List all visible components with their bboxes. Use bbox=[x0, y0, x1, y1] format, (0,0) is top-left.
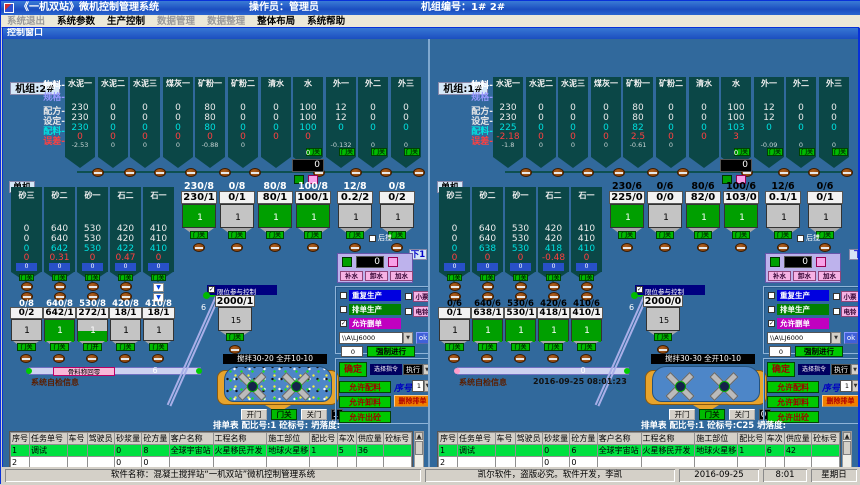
agg-weigher-body: 1 bbox=[143, 319, 174, 341]
ticket-checkbox[interactable] bbox=[405, 293, 412, 300]
agg-weigher-target-label: 640/6 bbox=[471, 299, 504, 307]
materials-row-label-0: 物料- bbox=[461, 78, 493, 88]
holding-gate-button[interactable]: 门关 bbox=[654, 333, 672, 341]
aggregate-gate-button[interactable]: 门关 bbox=[447, 274, 462, 281]
aggregate-valve[interactable] bbox=[87, 282, 99, 291]
table-header-12[interactable]: 砼标号 bbox=[812, 433, 840, 445]
agg-weigher-value: 410/1 bbox=[570, 307, 603, 319]
force-button[interactable]: 强制进行 bbox=[367, 346, 415, 357]
table-header-6[interactable]: 客户名称 bbox=[169, 433, 213, 445]
control-window-client: 机组:2#物料-规格-配方-设定-配料-误差-水泥一2302302300-2.5… bbox=[3, 39, 858, 467]
weigher-target-label: 12/8 bbox=[337, 181, 373, 191]
materials-row-label-1: 规格- bbox=[461, 90, 493, 100]
bell-checkbox[interactable] bbox=[405, 308, 412, 315]
weigher-count: 1 bbox=[393, 213, 403, 223]
materials-row-label-5: 误差- bbox=[461, 134, 493, 144]
materials-row-label-2: 配方- bbox=[461, 104, 493, 114]
repeat-label: 重复生产 bbox=[349, 290, 401, 301]
agg-weigher-door-button[interactable]: 门关 bbox=[149, 343, 168, 351]
aggregate-gate-button[interactable]: 门关 bbox=[546, 274, 561, 281]
rear-mix-checkbox[interactable] bbox=[369, 235, 376, 242]
command-panel: 确定选择指令执行▼允许配料序号1▼允许卸料删除排单允许出砼 bbox=[335, 358, 430, 424]
water-display: 0 bbox=[720, 159, 752, 172]
material-name: 水 bbox=[721, 78, 751, 88]
table-cell: 调试 bbox=[458, 445, 496, 457]
agg-weigher-door-button[interactable]: 门关 bbox=[445, 343, 464, 351]
water-display: 0 bbox=[292, 159, 324, 172]
exec-combo[interactable]: 执行 bbox=[403, 364, 423, 375]
material-setting: 0 bbox=[358, 113, 388, 123]
material-valve[interactable] bbox=[413, 168, 425, 177]
aggregate-valve[interactable] bbox=[54, 282, 66, 291]
aggregate-gate-button[interactable]: 门关 bbox=[151, 274, 166, 281]
weigher-count: 1 bbox=[821, 213, 831, 223]
material-setting: 0 bbox=[391, 113, 421, 123]
weigher-gate-button[interactable]: 门关 bbox=[304, 231, 322, 239]
water-button-0[interactable]: 补水 bbox=[340, 271, 363, 281]
agg-weigher-door-button[interactable]: 门关 bbox=[17, 343, 36, 351]
weigher-body: 1 bbox=[338, 204, 372, 228]
repeat-checkbox[interactable] bbox=[340, 292, 347, 299]
weigher-count: 1 bbox=[661, 213, 671, 223]
table-header-3[interactable]: 驾驶员 bbox=[515, 433, 543, 445]
table-header-2[interactable]: 车号 bbox=[67, 433, 87, 445]
agg-weigher-target-label: 530/8 bbox=[76, 299, 109, 307]
limit-checkbox[interactable]: ✓ bbox=[636, 286, 643, 293]
holding-valve[interactable] bbox=[657, 345, 669, 354]
material-gate-button[interactable]: 门关 bbox=[404, 148, 420, 156]
weigher-target-label: 230/8 bbox=[181, 181, 217, 191]
agg-weigher-body: 1 bbox=[505, 319, 536, 341]
agg-weigher-valve[interactable] bbox=[152, 354, 164, 363]
weigher-valve[interactable] bbox=[231, 243, 243, 252]
material-name: 水 bbox=[293, 78, 323, 88]
seq-combo[interactable]: 1 bbox=[412, 380, 424, 392]
agg-weigher-door-button[interactable]: 门关 bbox=[116, 343, 135, 351]
material-valve[interactable] bbox=[154, 168, 166, 177]
material-gate-button[interactable]: 门关 bbox=[371, 148, 387, 156]
delete-order-button[interactable]: 删除排单 bbox=[822, 395, 858, 407]
water-button-0[interactable]: 补水 bbox=[768, 271, 791, 281]
agg-weigher-valve[interactable] bbox=[119, 354, 131, 363]
material-gate-button[interactable]: 门关 bbox=[339, 148, 355, 156]
table-row[interactable]: 1调试06全球宇宙站火星移民开发地球火星移1642 bbox=[439, 445, 840, 457]
material-name: 水泥二 bbox=[526, 78, 556, 88]
seq-label: 序号 bbox=[822, 381, 840, 392]
aggregate-valve[interactable] bbox=[581, 282, 593, 291]
material-setting: 0 bbox=[558, 113, 588, 123]
agg-weigher-door-button[interactable]: 门关 bbox=[544, 343, 563, 351]
weigher-valve[interactable] bbox=[307, 243, 319, 252]
allow-discharge-button[interactable]: 允许卸料 bbox=[767, 396, 819, 408]
belt-value: 0 bbox=[573, 366, 593, 375]
weigher-target-label: 0/6 bbox=[647, 181, 683, 191]
table-cell: 火星移民开发 bbox=[641, 445, 695, 457]
water-dec-button[interactable] bbox=[816, 257, 826, 267]
rear-mix-label: 后搅 bbox=[806, 233, 828, 242]
weigher-gate-button[interactable]: 门关 bbox=[618, 231, 636, 239]
material-setting: 0 bbox=[689, 113, 719, 123]
weigher-valve[interactable] bbox=[659, 243, 671, 252]
weigher-target-label: 0/6 bbox=[807, 181, 843, 191]
aggregate-name: 石一 bbox=[571, 190, 602, 200]
table-header-7[interactable]: 工程名称 bbox=[641, 433, 695, 445]
allow-delete-checkbox[interactable]: ✓ bbox=[768, 320, 775, 327]
table-header-11[interactable]: 供应量 bbox=[784, 433, 811, 445]
weigher-gate-button[interactable]: 门关 bbox=[190, 231, 208, 239]
delete-order-button[interactable]: 删除排单 bbox=[394, 395, 430, 407]
ok-button[interactable]: ok bbox=[844, 332, 858, 344]
table-cell: 2 bbox=[439, 457, 458, 468]
material-setting: 0 bbox=[526, 113, 556, 123]
weigher-target-label: 230/6 bbox=[609, 181, 645, 191]
aggregate-recipe: 530 bbox=[505, 224, 536, 234]
aggregate-valve[interactable] bbox=[515, 282, 527, 291]
table-header-1[interactable]: 任务单号 bbox=[30, 433, 68, 445]
table-cell: 6 bbox=[570, 445, 597, 457]
water-button-1[interactable]: 卸水 bbox=[365, 271, 388, 281]
table-header-4[interactable]: 砂浆量 bbox=[115, 433, 142, 445]
machine-panel-1: 机组:1#物料-规格-配方-设定-配料-误差-水泥一230230225-2.18… bbox=[435, 77, 858, 467]
agg-weigher-valve[interactable] bbox=[481, 354, 493, 363]
material-name: 外一 bbox=[326, 78, 356, 88]
weigher-valve[interactable] bbox=[777, 243, 789, 252]
material-funnel bbox=[819, 157, 849, 168]
scroll-thumb[interactable] bbox=[843, 441, 851, 455]
agg-weigher-valve[interactable] bbox=[514, 354, 526, 363]
agg-weigher-valve[interactable] bbox=[53, 354, 65, 363]
table-header-11[interactable]: 供应量 bbox=[356, 433, 383, 445]
table-cell bbox=[337, 457, 356, 468]
table-header-4[interactable]: 砂浆量 bbox=[543, 433, 570, 445]
table-cell: 1 bbox=[738, 445, 765, 457]
material-funnel bbox=[558, 157, 588, 168]
table-vscrollbar[interactable]: ▲▼ bbox=[842, 431, 852, 467]
table-cell bbox=[213, 457, 267, 468]
agg-weigher-valve[interactable] bbox=[86, 354, 98, 363]
table-vscrollbar[interactable]: ▲▼ bbox=[414, 431, 424, 467]
agg-weigher-value: 530/1 bbox=[504, 307, 537, 319]
seq-combo[interactable]: 1 bbox=[840, 380, 852, 392]
allow-discharge-button[interactable]: 允许卸料 bbox=[339, 396, 391, 408]
material-valve[interactable] bbox=[380, 168, 392, 177]
agg-weigher-valve[interactable] bbox=[448, 354, 460, 363]
water-inc-button[interactable] bbox=[770, 257, 780, 267]
water-top-value: 0 bbox=[725, 149, 747, 157]
station-combo-arrow-icon[interactable]: ▼ bbox=[831, 332, 841, 344]
flat-belt[interactable] bbox=[457, 367, 629, 375]
title-bar: 《一机双站》微机控制管理系统 操作员：管理员 机组编号：1# 2# bbox=[1, 1, 860, 15]
table-header-10[interactable]: 车次 bbox=[765, 433, 784, 445]
water-button-2[interactable]: 加水 bbox=[818, 271, 841, 281]
material-setting: 0 bbox=[261, 113, 291, 123]
aggregate-name: 石二 bbox=[110, 190, 141, 200]
force-input[interactable]: 0 bbox=[769, 346, 791, 357]
mode-label: 选择指令 bbox=[370, 364, 402, 375]
confirm-button[interactable]: 确定 bbox=[339, 362, 367, 377]
material-setting: 100 bbox=[293, 113, 323, 123]
bell-checkbox[interactable] bbox=[833, 308, 840, 315]
weigher-gate-button[interactable]: 门关 bbox=[656, 231, 674, 239]
weigher-value: 225/0 bbox=[609, 191, 645, 204]
seq-combo-arrow-icon[interactable]: ▼ bbox=[852, 380, 858, 392]
agg-weigher-target-label: 410/8 bbox=[142, 299, 175, 307]
station-combo[interactable]: \\A\LJ6000 bbox=[767, 332, 831, 344]
water-button-2[interactable]: 加水 bbox=[390, 271, 413, 281]
ticket-label[interactable]: 小票 bbox=[841, 291, 858, 302]
page-tag: 下 bbox=[849, 249, 858, 260]
table-header-2[interactable]: 车号 bbox=[495, 433, 515, 445]
down-arrow-icon[interactable]: ▼ bbox=[153, 283, 164, 292]
queue-label: 排单生产 bbox=[777, 304, 829, 315]
material-gate-button[interactable]: 门关 bbox=[767, 148, 783, 156]
material-recipe: 0 bbox=[391, 103, 421, 113]
material-valve[interactable] bbox=[219, 168, 231, 177]
scroll-up-icon[interactable]: ▲ bbox=[843, 432, 851, 440]
aggregate-valve[interactable] bbox=[120, 282, 132, 291]
weigher-gate-button[interactable]: 门关 bbox=[732, 231, 750, 239]
queue-checkbox[interactable] bbox=[768, 306, 775, 313]
material-error2: 0 bbox=[130, 141, 160, 149]
agg-weigher-valve[interactable] bbox=[580, 354, 592, 363]
weigher-gate-button[interactable]: 门关 bbox=[694, 231, 712, 239]
material-valve[interactable] bbox=[582, 168, 594, 177]
weigher-valve[interactable] bbox=[735, 243, 747, 252]
material-setting: 230 bbox=[493, 113, 523, 123]
table-header-3[interactable]: 驾驶员 bbox=[87, 433, 115, 445]
material-gate-button[interactable]: 门关 bbox=[832, 148, 848, 156]
weigher-gate-button[interactable]: 门关 bbox=[774, 231, 792, 239]
weigher-valve[interactable] bbox=[697, 243, 709, 252]
weigher-body: 1 bbox=[766, 204, 800, 228]
holding-gate-button[interactable]: 门关 bbox=[226, 333, 244, 341]
water-inc-button[interactable] bbox=[342, 257, 352, 267]
force-input[interactable]: 0 bbox=[341, 346, 363, 357]
scroll-thumb[interactable] bbox=[415, 441, 423, 455]
material-name: 外二 bbox=[358, 78, 388, 88]
weigher-valve[interactable] bbox=[349, 243, 361, 252]
allow-delete-label: 允许删单 bbox=[777, 318, 829, 329]
aggregate-gate-button[interactable]: 门关 bbox=[118, 274, 133, 281]
confirm-button[interactable]: 确定 bbox=[767, 362, 795, 377]
weigher-valve[interactable] bbox=[819, 243, 831, 252]
water-amount-display: 0 bbox=[784, 256, 812, 268]
water-button-1[interactable]: 卸水 bbox=[793, 271, 816, 281]
table-cell bbox=[641, 457, 695, 468]
material-valve[interactable] bbox=[552, 168, 564, 177]
aggregate-name: 砂一 bbox=[77, 190, 108, 200]
agg-weigher-door-button[interactable]: 门关 bbox=[577, 343, 596, 351]
aggregate-gate-button[interactable]: 门关 bbox=[513, 274, 528, 281]
operator-label: 操作员：管理员 bbox=[249, 1, 319, 15]
table-header-5[interactable]: 砼方量 bbox=[570, 433, 597, 445]
table-header-5[interactable]: 砼方量 bbox=[142, 433, 169, 445]
material-valve[interactable] bbox=[778, 168, 790, 177]
water-control-panel: 0补水卸水加水 bbox=[765, 253, 841, 283]
material-valve[interactable] bbox=[185, 168, 197, 177]
aggregate-gate-button[interactable]: 门关 bbox=[579, 274, 594, 281]
repeat-checkbox[interactable] bbox=[768, 292, 775, 299]
holding-hopper-body: 15 bbox=[646, 307, 680, 331]
water-dec-button[interactable] bbox=[388, 257, 398, 267]
weigher-valve[interactable] bbox=[269, 243, 281, 252]
aggregate-valve[interactable] bbox=[21, 282, 33, 291]
weigher-target-label: 100/8 bbox=[295, 181, 331, 191]
limit-checkbox[interactable]: ✓ bbox=[208, 286, 215, 293]
materials-row-label-3: 设定- bbox=[33, 114, 65, 124]
aggregate-valve[interactable] bbox=[548, 282, 560, 291]
material-setting: 0 bbox=[130, 113, 160, 123]
agg-weigher-valve[interactable] bbox=[547, 354, 559, 363]
table-header-1[interactable]: 任务单号 bbox=[458, 433, 496, 445]
exec-combo[interactable]: 执行 bbox=[831, 364, 851, 375]
ticket-checkbox[interactable] bbox=[833, 293, 840, 300]
material-name: 水泥二 bbox=[98, 78, 128, 88]
selfcheck-datetime: 2016-09-25 08:01:23 bbox=[533, 377, 653, 386]
scroll-up-icon[interactable]: ▲ bbox=[415, 432, 423, 440]
table-header-12[interactable]: 砼标号 bbox=[384, 433, 412, 445]
table-row[interactable]: 200 bbox=[439, 457, 840, 468]
rotor-hub bbox=[719, 381, 730, 392]
material-valve[interactable] bbox=[92, 168, 104, 177]
table-header-8[interactable]: 施工部位 bbox=[267, 433, 310, 445]
material-valve[interactable] bbox=[613, 168, 625, 177]
aggregate-recipe: 420 bbox=[110, 224, 141, 234]
station-combo[interactable]: \\A\LJ6000 bbox=[339, 332, 403, 344]
rear-mix-label: 后搅 bbox=[378, 233, 400, 242]
material-name: 水泥一 bbox=[65, 78, 95, 88]
holding-valve[interactable] bbox=[229, 345, 241, 354]
table-header-10[interactable]: 车次 bbox=[337, 433, 356, 445]
weigher-count: 1 bbox=[351, 213, 361, 223]
table-header-9[interactable]: 配比号 bbox=[738, 433, 765, 445]
material-recipe: 12 bbox=[754, 103, 784, 113]
material-name: 清水 bbox=[689, 78, 719, 88]
rear-mix-checkbox[interactable] bbox=[797, 235, 804, 242]
production-panel: 重复生产小票排单生产电铃✓允许删单\\A\LJ6000▼ok0强制进行 bbox=[335, 286, 430, 354]
material-valve[interactable] bbox=[350, 168, 362, 177]
material-valve[interactable] bbox=[808, 168, 820, 177]
aggregate-valve[interactable] bbox=[449, 282, 461, 291]
material-valve[interactable] bbox=[520, 168, 532, 177]
materials-row-label-2: 配方- bbox=[33, 104, 65, 114]
aggregate-error: 0.31 bbox=[44, 253, 75, 263]
aggregate-gate-button[interactable]: 门关 bbox=[85, 274, 100, 281]
material-valve[interactable] bbox=[124, 168, 136, 177]
aggregate-error: 0 bbox=[505, 253, 536, 263]
allow-delete-label: 允许删单 bbox=[349, 318, 401, 329]
queue-checkbox[interactable] bbox=[340, 306, 347, 313]
weigher-gate-button[interactable]: 门关 bbox=[228, 231, 246, 239]
aggregate-gate-button[interactable]: 门关 bbox=[19, 274, 34, 281]
table-header-9[interactable]: 配比号 bbox=[310, 433, 337, 445]
material-valve[interactable] bbox=[647, 168, 659, 177]
material-valve[interactable] bbox=[249, 168, 261, 177]
table-cell: 0 bbox=[570, 457, 597, 468]
table-cell bbox=[812, 445, 840, 457]
schedule-table: 序号任务单号车号驾驶员砂浆量砼方量客户名称工程名称施工部位配比号车次供应量砼标号… bbox=[437, 431, 841, 467]
weigher-target-label: 100/6 bbox=[723, 181, 759, 191]
table-header-6[interactable]: 客户名称 bbox=[597, 433, 641, 445]
table-cell bbox=[738, 457, 765, 468]
agg-weigher-door-button[interactable]: 门开 bbox=[83, 343, 102, 351]
table-cell: 1 bbox=[310, 445, 337, 457]
material-valve[interactable] bbox=[677, 168, 689, 177]
agg-weigher-target-label: 420/6 bbox=[537, 299, 570, 307]
agg-weigher-count: 1 bbox=[516, 326, 526, 336]
status-date: 2016-09-25 bbox=[679, 469, 759, 482]
material-valve[interactable] bbox=[841, 168, 853, 177]
limit-label: 限位参与控制 bbox=[217, 286, 277, 295]
weigher-target-label: 12/6 bbox=[765, 181, 801, 191]
force-button[interactable]: 强制进行 bbox=[795, 346, 843, 357]
limit-control-group: ✓限位参与控制 bbox=[635, 285, 705, 295]
incline-value: 6 bbox=[629, 303, 641, 312]
mixer-mode-label: 搅拌30-20 全开10-10 bbox=[223, 354, 327, 364]
material-error2: 0 bbox=[98, 141, 128, 149]
agg-weigher-door-button[interactable]: 门关 bbox=[50, 343, 69, 351]
agg-weigher-body: 1 bbox=[11, 319, 42, 341]
exec-combo-arrow-icon[interactable]: ▼ bbox=[851, 364, 858, 375]
aggregate-valve[interactable] bbox=[482, 282, 494, 291]
table-row[interactable]: 1调试08全球宇宙站火星移民开发地球火星移1536 bbox=[11, 445, 412, 457]
table-cell: 5 bbox=[337, 445, 356, 457]
agg-weigher-value: 0/1 bbox=[438, 307, 471, 319]
material-setting: 100 bbox=[721, 113, 751, 123]
table-row[interactable]: 200 bbox=[11, 457, 412, 468]
aggregate-level: 0 bbox=[49, 263, 70, 271]
weigher-value: 230/1 bbox=[181, 191, 217, 204]
weigher-gate-button[interactable]: 门关 bbox=[346, 231, 364, 239]
aggregate-gate-button[interactable]: 门关 bbox=[52, 274, 67, 281]
weigher-valve[interactable] bbox=[391, 243, 403, 252]
material-name: 矿粉二 bbox=[228, 78, 258, 88]
agg-weigher-valve[interactable] bbox=[20, 354, 32, 363]
table-header-0[interactable]: 序号 bbox=[439, 433, 458, 445]
material-funnel bbox=[786, 157, 816, 168]
table-cell bbox=[495, 457, 515, 468]
agg-weigher-target-label: 0/6 bbox=[438, 299, 471, 307]
aggregate-setting: 530 bbox=[77, 234, 108, 244]
water-amount-display: 0 bbox=[356, 256, 384, 268]
table-header-0[interactable]: 序号 bbox=[11, 433, 30, 445]
weigher-gate-button[interactable]: 门关 bbox=[266, 231, 284, 239]
aggregate-recipe: 640 bbox=[472, 224, 503, 234]
aggregate-gate-button[interactable]: 门关 bbox=[480, 274, 495, 281]
material-gate-button[interactable]: 门关 bbox=[799, 148, 815, 156]
holding-hopper-value: 2000/0 bbox=[643, 295, 683, 307]
bell-label[interactable]: 电铃 bbox=[841, 306, 858, 317]
material-error2 bbox=[689, 141, 719, 149]
station-combo-arrow-icon[interactable]: ▼ bbox=[403, 332, 413, 344]
agg-weigher-door-button[interactable]: 门关 bbox=[511, 343, 530, 351]
weigher-value: 0.1/1 bbox=[765, 191, 801, 204]
mode-label: 选择指令 bbox=[798, 364, 830, 375]
weigher-valve[interactable] bbox=[193, 243, 205, 252]
allow-batch-button[interactable]: 允许配料 bbox=[767, 381, 819, 393]
allow-delete-checkbox[interactable]: ✓ bbox=[340, 320, 347, 327]
table-cell: 调试 bbox=[30, 445, 68, 457]
table-header-8[interactable]: 施工部位 bbox=[695, 433, 738, 445]
agg-weigher-door-button[interactable]: 门关 bbox=[478, 343, 497, 351]
weigher-valve[interactable] bbox=[621, 243, 633, 252]
materials-row-label-4: 配料- bbox=[461, 124, 493, 134]
agg-weigher-value: 18/1 bbox=[142, 307, 175, 319]
material-funnel bbox=[623, 157, 653, 168]
table-header-7[interactable]: 工程名称 bbox=[213, 433, 267, 445]
allow-batch-button[interactable]: 允许配料 bbox=[339, 381, 391, 393]
table-cell: 地球火星移 bbox=[267, 445, 310, 457]
